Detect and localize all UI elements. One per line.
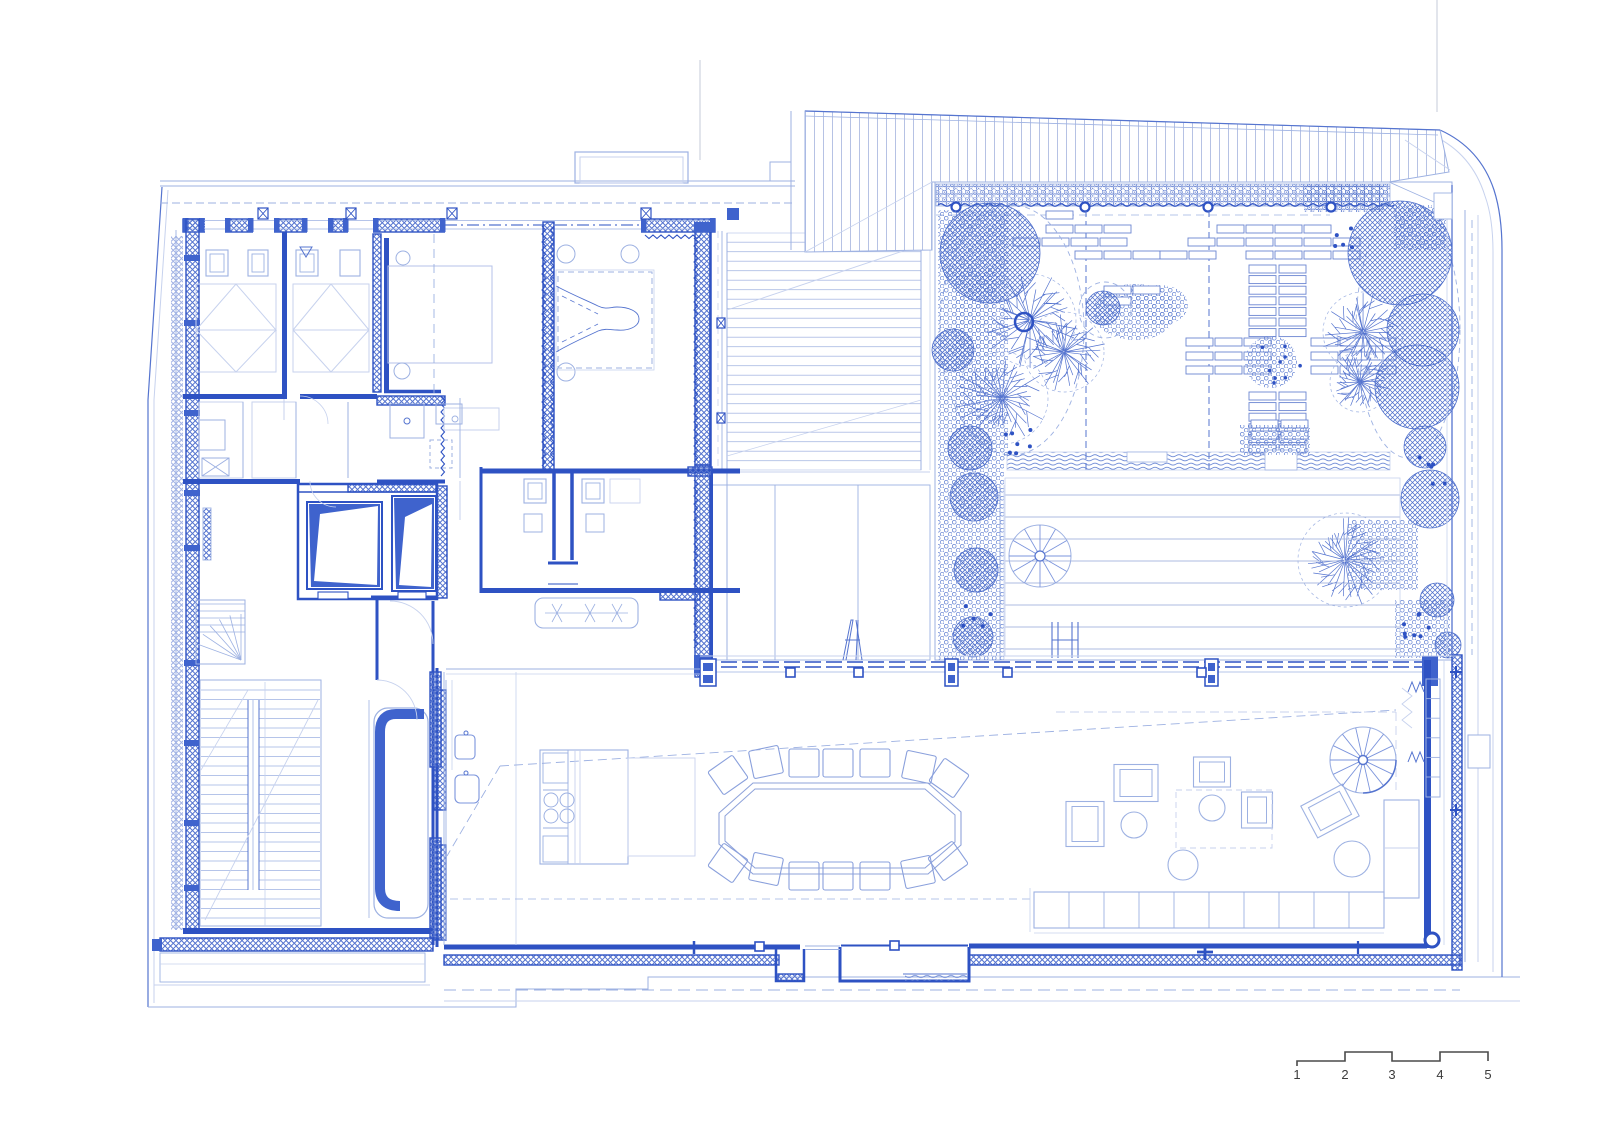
svg-text:4: 4 xyxy=(1436,1067,1443,1082)
svg-text:3: 3 xyxy=(1388,1067,1395,1082)
svg-text:1: 1 xyxy=(1293,1067,1300,1082)
svg-text:2: 2 xyxy=(1341,1067,1348,1082)
svg-text:5: 5 xyxy=(1484,1067,1491,1082)
